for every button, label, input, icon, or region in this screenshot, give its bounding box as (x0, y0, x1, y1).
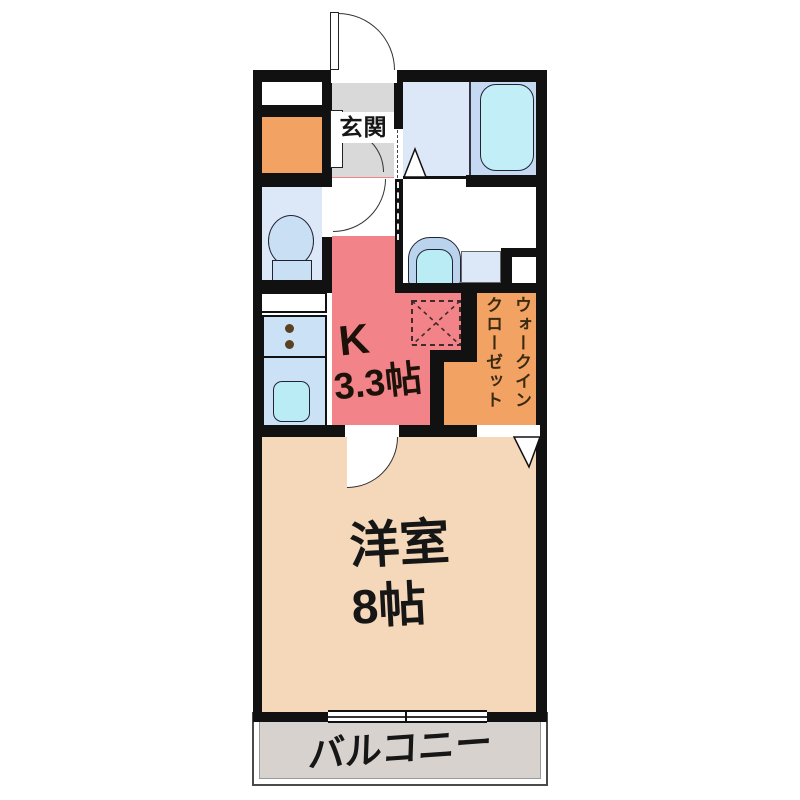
bathroom-door-track (397, 130, 398, 178)
entry-door-swing-icon (338, 13, 395, 70)
kitchen-sink-icon (273, 381, 310, 422)
toilet-door-opening (322, 187, 332, 237)
storage-room (261, 80, 322, 105)
window-pane-line (328, 716, 487, 718)
stove-icon (262, 315, 327, 358)
wall (430, 350, 477, 362)
room-door-opening (345, 425, 399, 437)
utility-room (262, 117, 322, 173)
stove-burner (285, 324, 294, 333)
wall (253, 280, 332, 293)
washroom-door-track (397, 182, 399, 240)
washstand-counter (461, 251, 501, 283)
wall (536, 70, 547, 722)
kitchen-shelf (257, 292, 327, 313)
genkan-label-box: 玄関 (333, 112, 394, 143)
wall (253, 105, 332, 117)
wall (253, 70, 262, 722)
bathtub-icon (480, 84, 534, 171)
stove-burner (285, 340, 294, 349)
wall (501, 248, 536, 257)
wall (461, 293, 477, 352)
walk-in-closet-room (444, 362, 477, 425)
washbasin-bowl (416, 249, 453, 285)
floor-plan: 玄関 K 3.3帖 ウォークイン クローゼット 洋室 8帖 バルコニー (0, 0, 800, 800)
bathtub-divider (469, 80, 471, 175)
wall (395, 283, 547, 293)
walk-in-closet-label: ウォークイン クローゼット (479, 296, 535, 426)
folding-door-icon (512, 436, 542, 469)
wall (253, 173, 332, 187)
western-room-size-label: 8帖 (309, 578, 469, 637)
folding-door-icon (402, 147, 428, 179)
kitchen-label: K (324, 315, 384, 365)
window-center-tick (405, 712, 407, 721)
sliding-window-icon (328, 710, 487, 723)
wall (466, 175, 547, 187)
genkan-label: 玄関 (340, 115, 388, 139)
western-room (262, 437, 536, 712)
toilet-tank (272, 260, 312, 281)
refrigerator-space-icon (409, 298, 463, 348)
western-room-label: 洋室 (311, 513, 489, 575)
